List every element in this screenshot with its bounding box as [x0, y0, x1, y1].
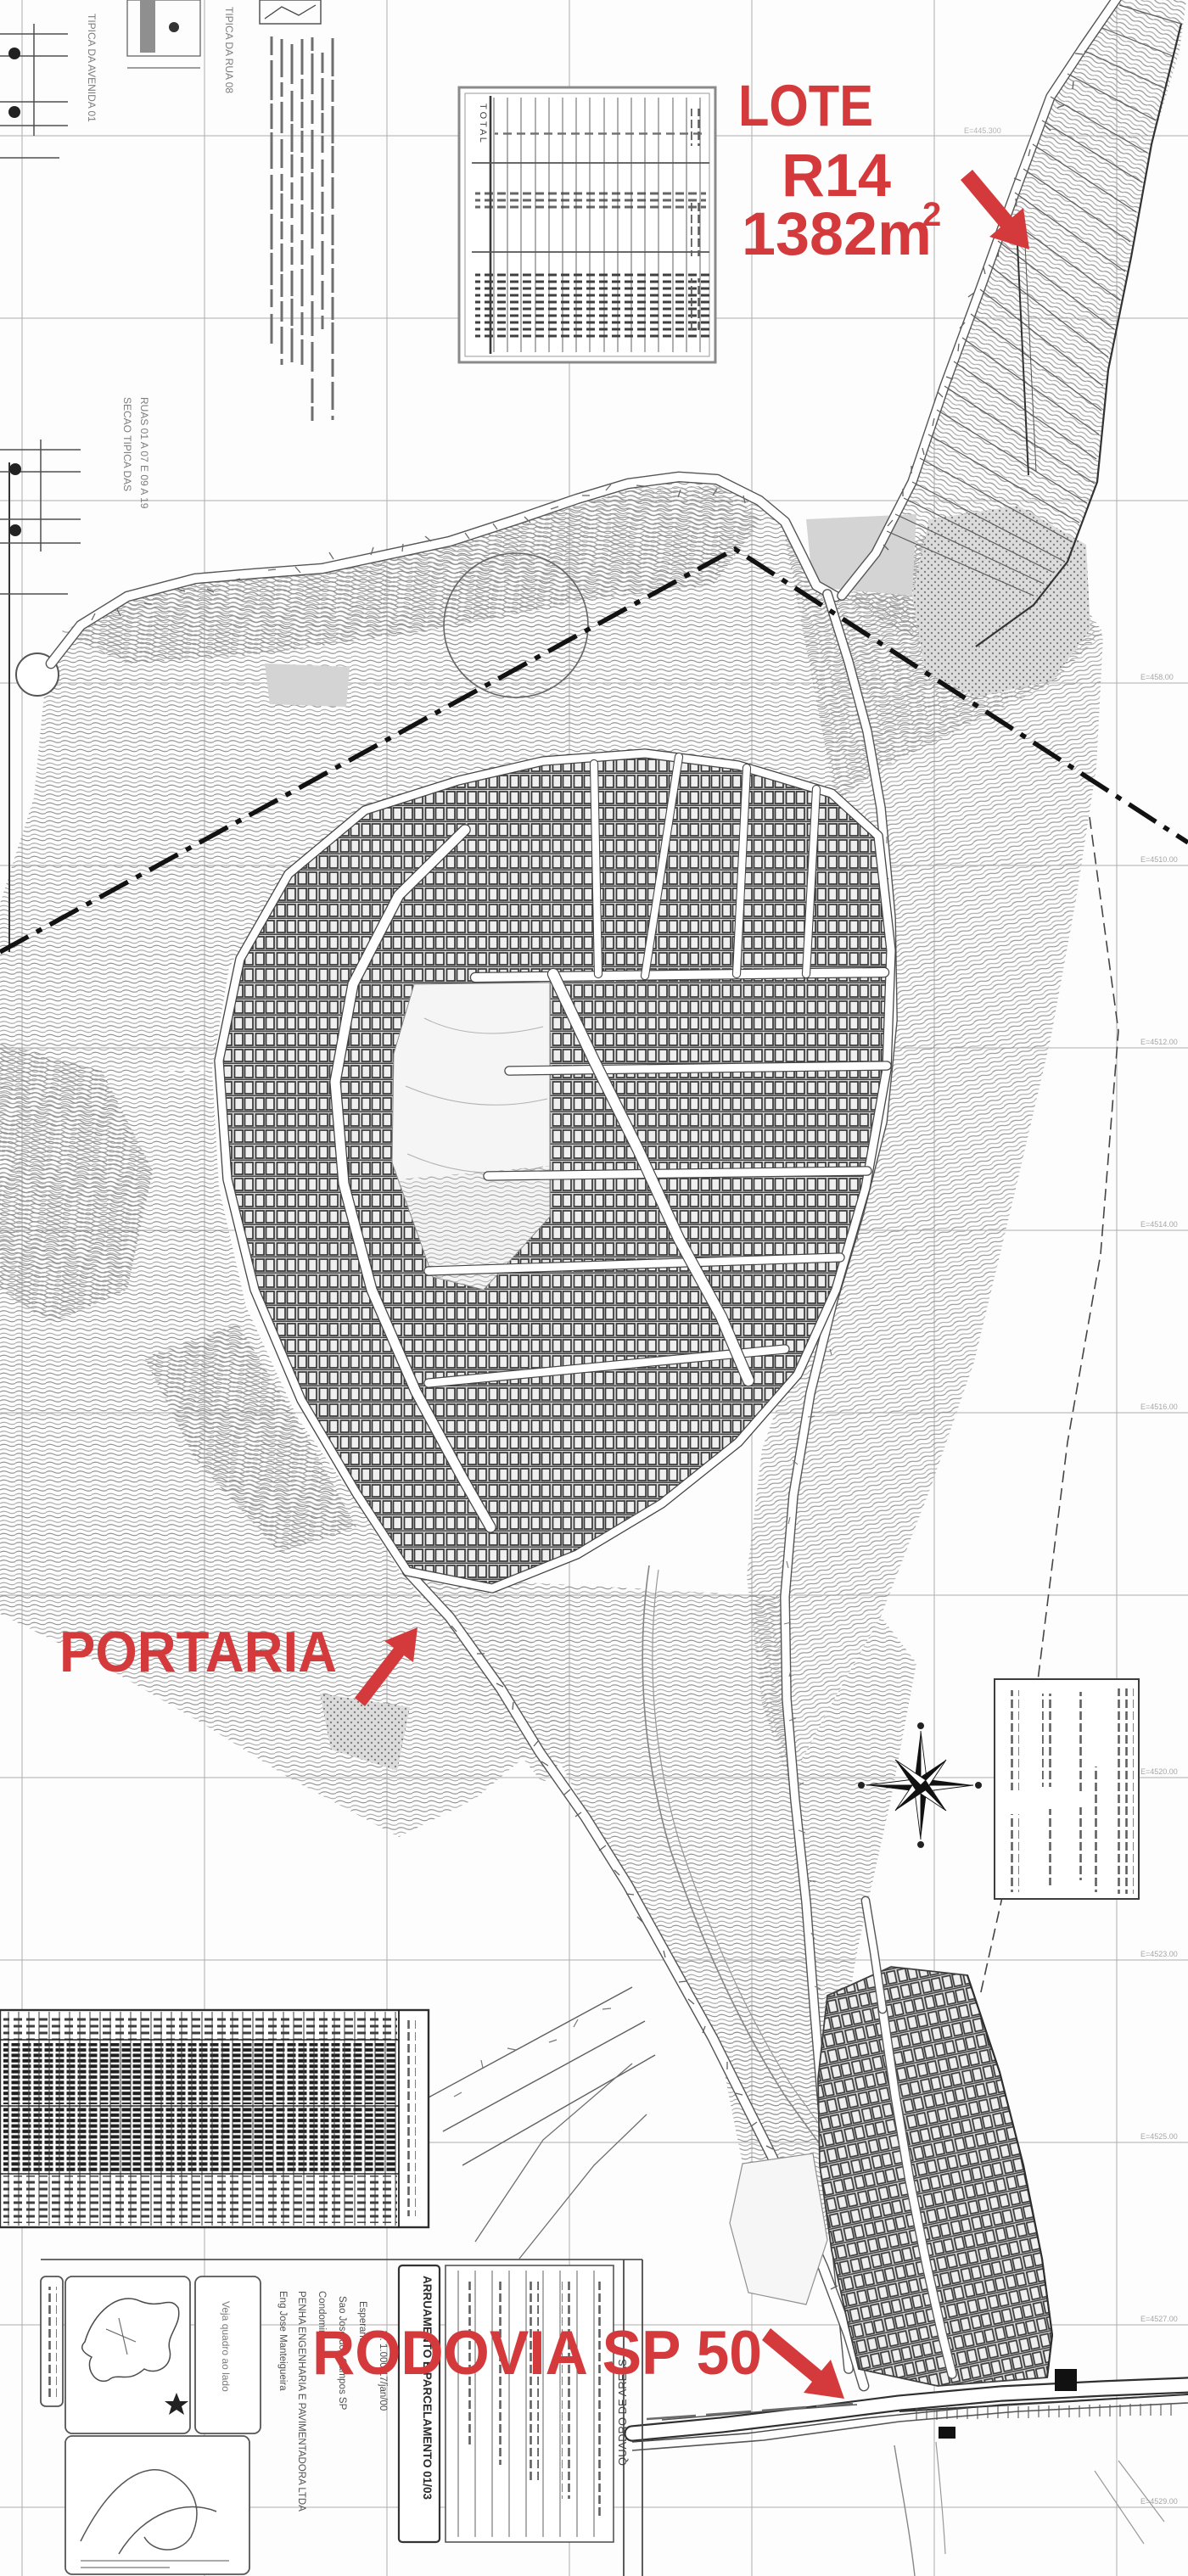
svg-text:PORTARIA: PORTARIA — [59, 1620, 337, 1684]
svg-text:E=4520.00: E=4520.00 — [1140, 1767, 1178, 1776]
svg-text:E=4512.00: E=4512.00 — [1140, 1038, 1178, 1046]
svg-text:T O T A L: T O T A L — [478, 104, 488, 143]
svg-text:ARRUAMENTO E PARCELAMENTO 01/0: ARRUAMENTO E PARCELAMENTO 01/03 — [421, 2276, 434, 2500]
svg-text:SECAO TIPICA DAS: SECAO TIPICA DAS — [121, 397, 133, 491]
svg-text:R14: R14 — [782, 143, 892, 210]
svg-text:1382m: 1382m — [742, 201, 932, 268]
svg-text:Veja quadro ao lado: Veja quadro ao lado — [220, 2301, 232, 2392]
svg-text:E=4510.00: E=4510.00 — [1140, 855, 1178, 864]
svg-text:E=445.300: E=445.300 — [964, 126, 1001, 135]
svg-text:E=4516.00: E=4516.00 — [1140, 1403, 1178, 1411]
svg-text:LOTE: LOTE — [738, 73, 873, 138]
svg-text:RODOVIA SP 50: RODOVIA SP 50 — [312, 2319, 762, 2388]
svg-text:PENHA ENGENHARIA E PAVIMENTADO: PENHA ENGENHARIA E PAVIMENTADORA LTDA — [296, 2291, 306, 2512]
svg-text:RUAS 01 A 07 E 09 A 19: RUAS 01 A 07 E 09 A 19 — [138, 397, 150, 509]
svg-text:E=4523.00: E=4523.00 — [1140, 1950, 1178, 1958]
svg-text:E=4514.00: E=4514.00 — [1140, 1220, 1178, 1229]
svg-text:TIPICA DA AVENIDA 01: TIPICA DA AVENIDA 01 — [86, 14, 98, 122]
svg-text:E=4527.00: E=4527.00 — [1140, 2315, 1178, 2323]
svg-text:E=4529.00: E=4529.00 — [1140, 2497, 1178, 2506]
svg-text:Eng Jose Manteigueira: Eng Jose Manteigueira — [277, 2291, 288, 2391]
svg-text:2: 2 — [922, 196, 941, 233]
svg-text:E=4525.00: E=4525.00 — [1140, 2132, 1178, 2141]
svg-text:TIPICA DA RUA 08: TIPICA DA RUA 08 — [223, 7, 235, 93]
svg-text:E=458.00: E=458.00 — [1140, 673, 1174, 681]
